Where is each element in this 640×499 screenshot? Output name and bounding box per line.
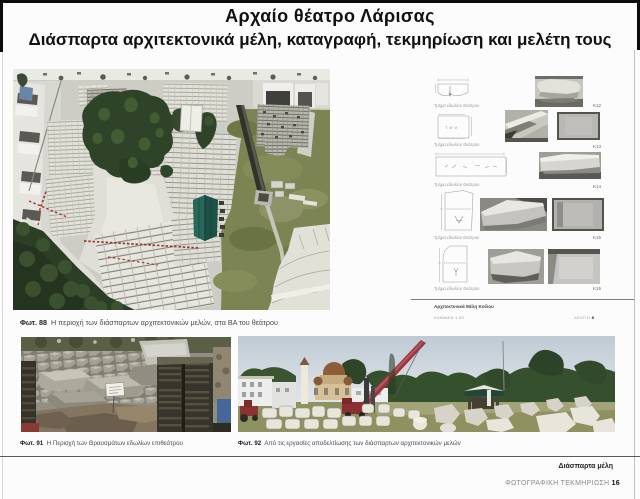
svg-text:ΤΘV: ΤΘV: [445, 125, 459, 130]
